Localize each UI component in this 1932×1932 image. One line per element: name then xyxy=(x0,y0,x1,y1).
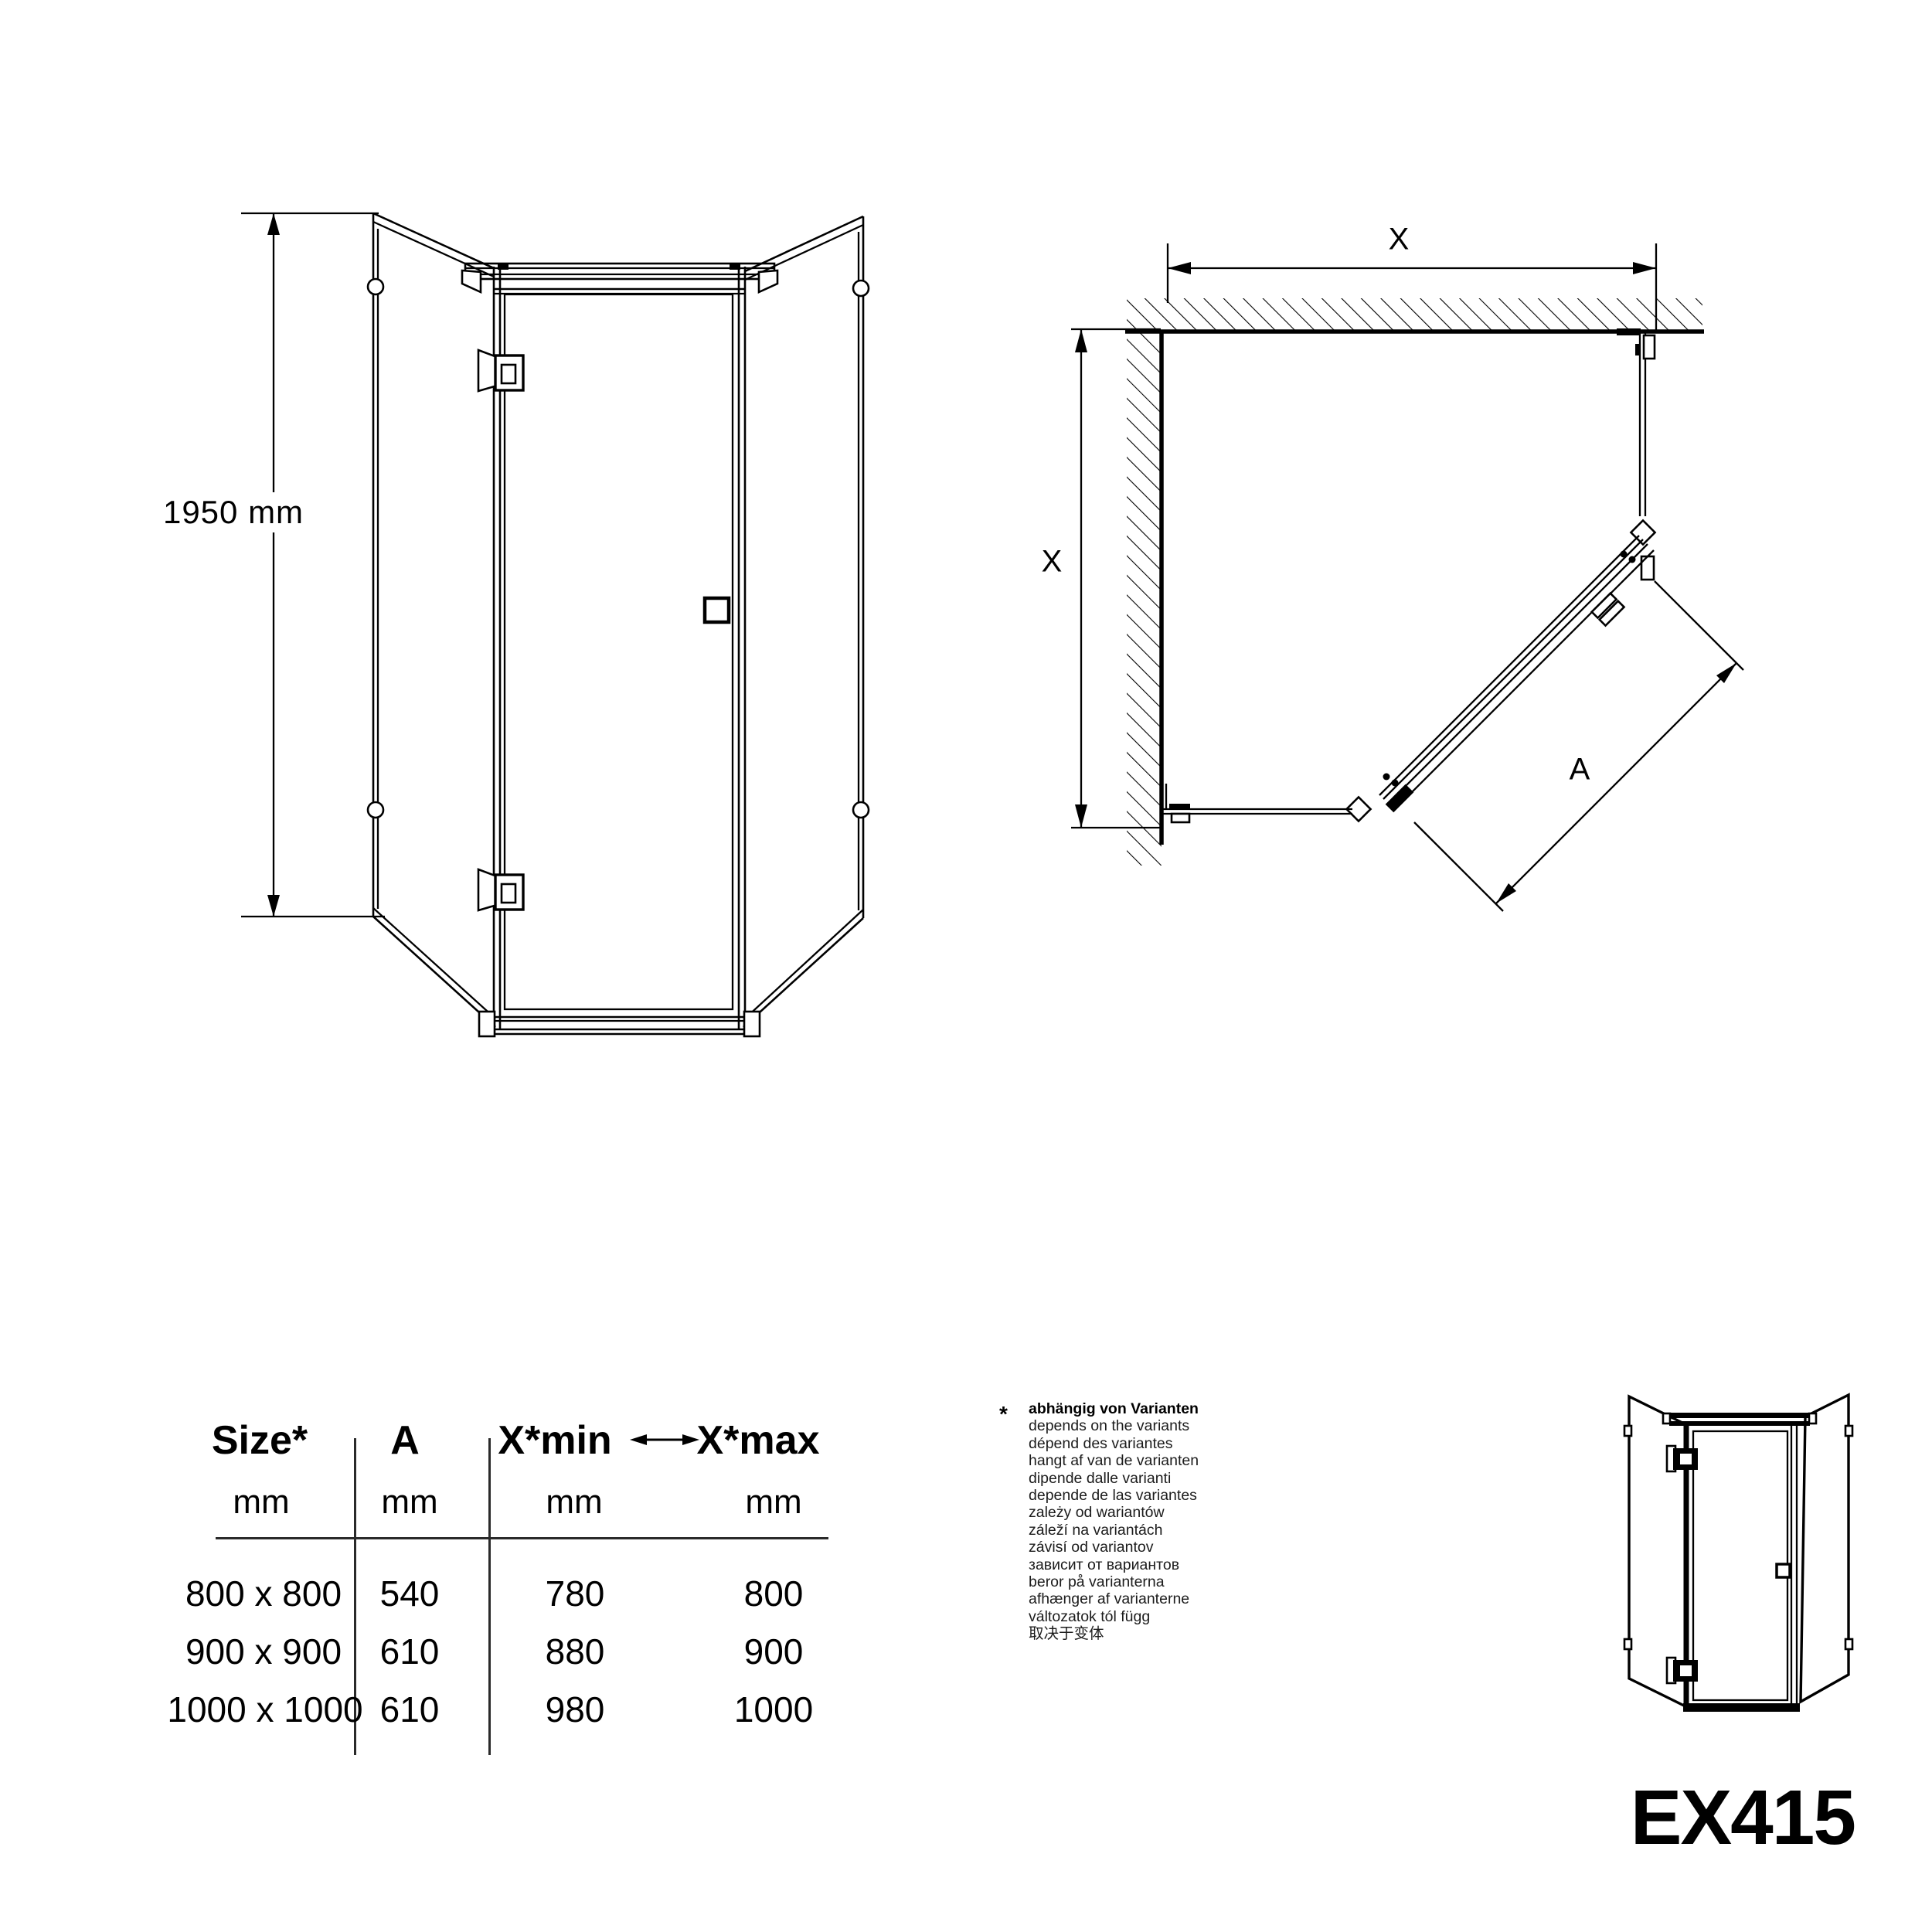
note-translation: depends on the variants xyxy=(1029,1417,1307,1434)
wall-clip-icon xyxy=(853,802,869,818)
table-header-a: A xyxy=(390,1417,420,1464)
table-cell: 800 x 800 xyxy=(185,1573,342,1614)
mini-door-glass xyxy=(1693,1431,1787,1700)
hinge-clamp xyxy=(1389,788,1410,808)
height-dimension-label: 1950 mm xyxy=(155,492,311,532)
plan-door-width-label: A xyxy=(1565,753,1595,787)
mini-hinge-top-icon xyxy=(1667,1446,1698,1471)
threshold-end-cap xyxy=(479,1012,495,1036)
note-title: abhängig von Varianten xyxy=(1029,1400,1307,1417)
note-translation: dipende dalle varianti xyxy=(1029,1470,1307,1487)
door-hinge-bottom-icon xyxy=(478,869,523,910)
bar-end-bracket xyxy=(462,270,481,292)
table-header-xmin: X*min xyxy=(498,1417,611,1464)
mini-hinge-bottom-icon xyxy=(1667,1658,1698,1683)
note-translation: 取决于变体 xyxy=(1029,1625,1307,1642)
asterisk-marker: * xyxy=(999,1402,1008,1427)
door-glass xyxy=(505,294,733,1009)
mini-bar-cap xyxy=(1663,1413,1670,1423)
hinge-screw-icon xyxy=(1383,774,1390,781)
table-cell: 800 xyxy=(744,1573,804,1614)
mini-threshold xyxy=(1683,1703,1800,1712)
right-side-panel xyxy=(743,216,869,1027)
table-cell: 880 xyxy=(546,1631,605,1672)
mini-wall-clip-icon xyxy=(1845,1639,1852,1649)
note-translation: závisí od variantov xyxy=(1029,1539,1307,1556)
product-code: EX415 xyxy=(1538,1777,1855,1858)
mini-left-panel xyxy=(1629,1396,1685,1706)
plan-bottom-panel xyxy=(1163,784,1352,822)
note-translation: változatok tól függ xyxy=(1029,1608,1307,1625)
plan-depth-label: X xyxy=(1037,545,1067,580)
mini-bar-cap xyxy=(1809,1413,1816,1423)
note-translation: afhænger af varianterne xyxy=(1029,1590,1307,1607)
hinge-screw-icon xyxy=(1392,780,1399,787)
mini-product-drawing xyxy=(1624,1395,1852,1712)
wall-clip-icon xyxy=(368,279,383,294)
table-cell: 980 xyxy=(546,1689,605,1730)
door-handle-icon xyxy=(705,598,729,622)
plan-width-label: X xyxy=(1384,223,1414,257)
note-translation: hangt af van de varianten xyxy=(1029,1452,1307,1469)
door-hinge-top-icon xyxy=(478,350,523,391)
table-header-xmax: X*max xyxy=(697,1417,820,1464)
table-column-rule xyxy=(488,1438,491,1755)
note-translation: зависит от вариантов xyxy=(1029,1556,1307,1573)
mini-wall-clip-icon xyxy=(1845,1426,1852,1436)
table-cell: 780 xyxy=(546,1573,605,1614)
plan-right-panel xyxy=(1617,328,1655,516)
table-cell: 900 xyxy=(744,1631,804,1672)
variants-note: * abhängig von Varianten depends on the … xyxy=(1029,1400,1307,1643)
note-translation: záleží na variantách xyxy=(1029,1522,1307,1539)
table-cell: 610 xyxy=(380,1631,440,1672)
mini-wall-clip-icon xyxy=(1624,1639,1631,1649)
plan-door xyxy=(1346,520,1655,821)
note-translation: beror på varianterna xyxy=(1029,1573,1307,1590)
height-dimension xyxy=(241,213,385,917)
left-side-panel xyxy=(368,213,495,1027)
wall-bracket xyxy=(1644,335,1655,359)
min-max-range-arrow-icon xyxy=(628,1430,701,1450)
table-cell: 610 xyxy=(380,1689,440,1730)
note-translation: zależy od wariantów xyxy=(1029,1504,1307,1521)
hinge-screw-icon xyxy=(1621,551,1628,558)
top-bar xyxy=(462,264,777,292)
mini-right-panel xyxy=(1801,1395,1849,1702)
unit-label: mm xyxy=(381,1483,437,1522)
table-cell: 1000 x 1000 xyxy=(167,1689,362,1730)
mini-wall-clip-icon xyxy=(1624,1426,1631,1436)
table-cell: 540 xyxy=(380,1573,440,1614)
wall-bracket-foot xyxy=(1172,814,1189,822)
note-translation: dépend des variantes xyxy=(1029,1435,1307,1452)
unit-label: mm xyxy=(745,1483,801,1522)
product-datasheet: 1950 mm X X A Size* A X*min X*max mm mm … xyxy=(0,0,1932,1932)
mini-top-bar xyxy=(1669,1413,1810,1418)
table-cell: 1000 xyxy=(734,1689,813,1730)
wall-hatch xyxy=(1127,298,1702,866)
note-translation: depende de las variantes xyxy=(1029,1487,1307,1504)
mini-top-bar xyxy=(1669,1421,1810,1426)
unit-label: mm xyxy=(233,1483,289,1522)
table-cell: 900 x 900 xyxy=(185,1631,342,1672)
mini-handle-icon xyxy=(1777,1564,1790,1577)
wall-clip-icon xyxy=(853,281,869,296)
table-header-rule xyxy=(216,1537,828,1539)
threshold-end-cap xyxy=(744,1012,760,1036)
wall-clip-icon xyxy=(368,802,383,818)
plan-view-drawing xyxy=(1071,243,1743,911)
front-elevation-drawing xyxy=(241,213,869,1036)
hinge-screw-icon xyxy=(1629,556,1636,563)
bar-end-bracket xyxy=(759,270,777,292)
wall-bracket xyxy=(1169,804,1190,810)
table-header-size: Size* xyxy=(212,1417,308,1464)
unit-label: mm xyxy=(546,1483,602,1522)
plan-dim-a xyxy=(1414,581,1743,911)
